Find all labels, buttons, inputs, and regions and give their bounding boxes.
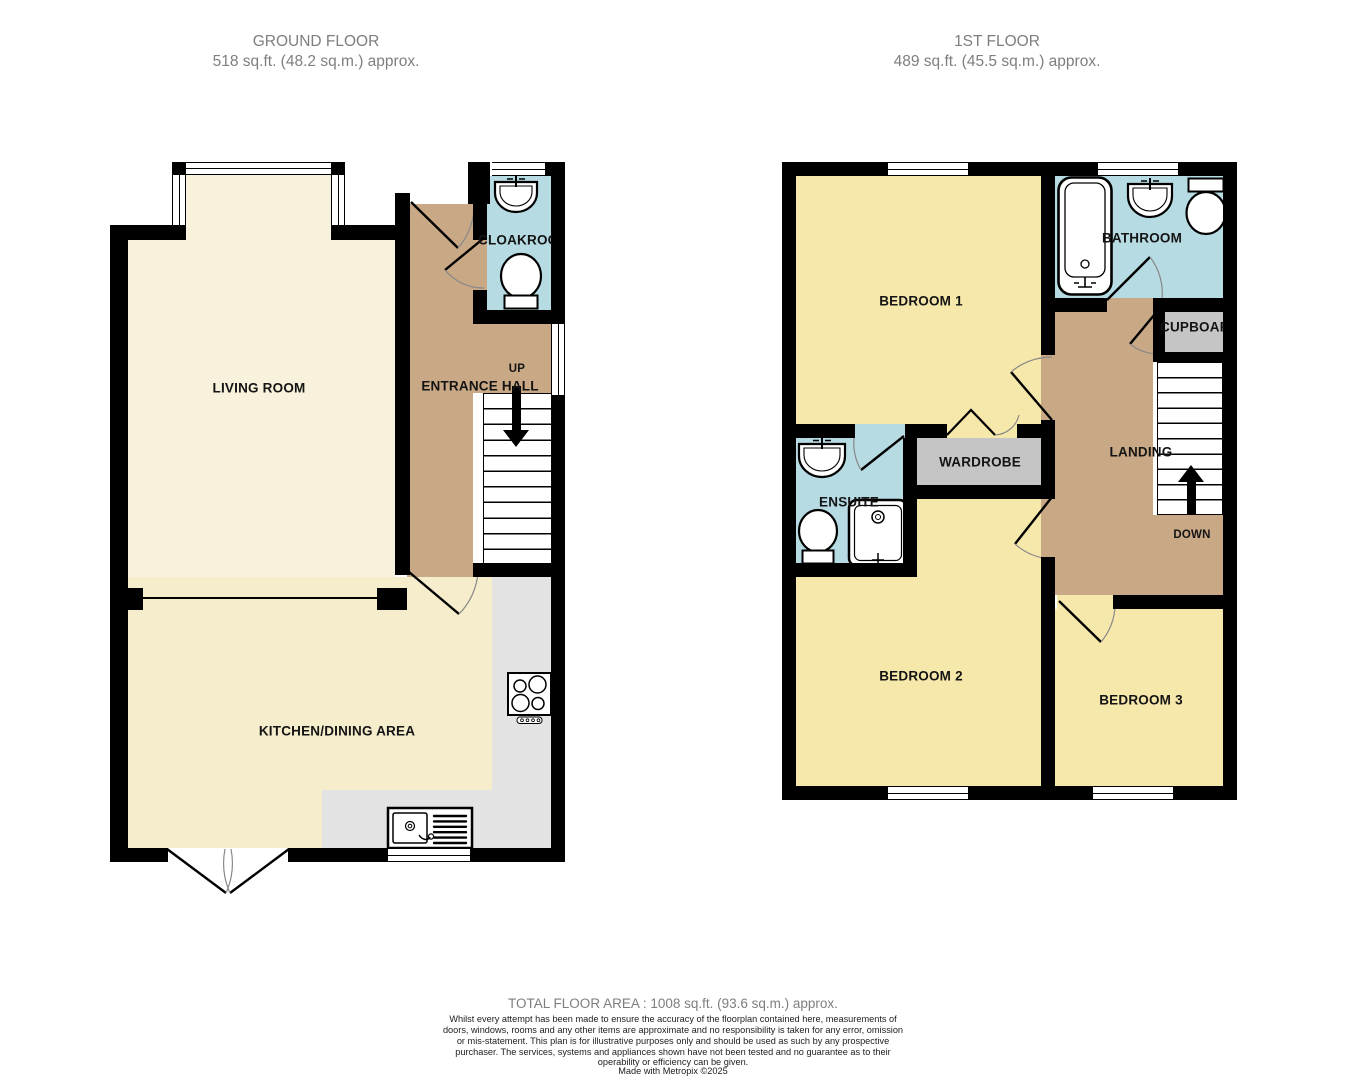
bedroom3-label: BEDROOM 3: [1099, 693, 1183, 708]
living-room-floor: [128, 240, 395, 597]
cloakroom-window: [492, 162, 545, 176]
wall: [782, 162, 796, 800]
wall: [551, 162, 565, 324]
wall: [1223, 162, 1237, 800]
ground-floor-title: GROUND FLOOR 518 sq.ft. (48.2 sq.m.) app…: [116, 32, 516, 72]
wall: [782, 563, 917, 577]
kitchen-sink-icon: [386, 806, 474, 850]
first-floor-title-text: 1ST FLOOR: [797, 32, 1197, 52]
landing-floor: [1153, 515, 1223, 595]
wall: [473, 563, 565, 577]
wardrobe-label: WARDROBE: [939, 455, 1021, 470]
bedroom3-window: [1093, 786, 1173, 800]
wall: [331, 162, 345, 175]
wall: [551, 395, 565, 848]
cloakroom-label: CLOAKROOM: [478, 233, 552, 248]
stove-icon: [506, 671, 553, 724]
down-label: DOWN: [1173, 529, 1210, 541]
wall: [1113, 595, 1223, 609]
first-floor-area-text: 489 sq.ft. (45.5 sq.m.) approx.: [797, 52, 1197, 72]
wall: [905, 424, 947, 438]
wall: [968, 162, 1098, 176]
entrance-hall-label: ENTRANCE HALL: [421, 379, 538, 394]
toilet-icon: [497, 251, 545, 311]
wall: [1153, 352, 1223, 362]
bay-window-floor: [186, 175, 331, 240]
wall: [377, 588, 407, 610]
sink-icon: [1121, 175, 1179, 235]
bathroom-window: [1098, 162, 1178, 176]
total-floor-area: TOTAL FLOOR AREA : 1008 sq.ft. (93.6 sq.…: [423, 996, 923, 1011]
ground-floor-title-text: GROUND FLOOR: [116, 32, 516, 52]
bedroom1-window: [888, 162, 968, 176]
wall: [782, 162, 888, 176]
wall: [110, 848, 168, 862]
ground-floor-area-text: 518 sq.ft. (48.2 sq.m.) approx.: [116, 52, 516, 72]
living-room-label: LIVING ROOM: [213, 381, 306, 396]
wall: [782, 424, 855, 438]
toilet-icon: [795, 507, 841, 567]
wall: [903, 438, 917, 563]
kitchen-dining-label: KITCHEN/DINING AREA: [259, 724, 415, 739]
wall: [288, 848, 388, 862]
bedroom2-window: [888, 786, 968, 800]
ensuite-door: [848, 428, 910, 478]
wall: [473, 310, 565, 324]
cupboard-label: CUPBOARD: [1160, 320, 1224, 335]
wall: [110, 588, 143, 610]
wall: [395, 193, 410, 575]
wall: [1041, 176, 1055, 355]
first-stairs-arrow-icon: [1187, 481, 1196, 515]
bedroom2-door: [1006, 490, 1056, 564]
first-stairs-arrowhead-icon: [1178, 465, 1204, 482]
bay-window: [331, 175, 345, 225]
wall: [1017, 424, 1041, 438]
first-floor-title: 1ST FLOOR 489 sq.ft. (45.5 sq.m.) approx…: [797, 32, 1197, 72]
ground-stairs-arrowhead-icon: [503, 430, 529, 447]
hall-window: [551, 324, 565, 395]
wall: [782, 786, 888, 800]
sink-icon: [489, 173, 543, 221]
wall: [473, 176, 487, 240]
wall: [172, 162, 186, 175]
floorplan-canvas: GROUND FLOOR 518 sq.ft. (48.2 sq.m.) app…: [0, 0, 1347, 1080]
ensuite-label: ENSUITE: [819, 495, 879, 510]
kitchen-window: [388, 848, 470, 862]
room-divider-line: [143, 597, 377, 599]
bedroom3-door: [1052, 594, 1120, 648]
wall: [1041, 557, 1055, 786]
wall: [968, 786, 1093, 800]
bay-window: [186, 162, 331, 175]
disclaimer-text: Whilst every attempt has been made to en…: [438, 1014, 908, 1068]
bedroom2-label: BEDROOM 2: [879, 669, 963, 684]
sink-icon: [793, 434, 853, 492]
wall: [903, 485, 1055, 499]
wall: [110, 225, 128, 848]
credit-text: Made with Metropix ©2025: [438, 1066, 908, 1076]
bathroom-label: BATHROOM: [1102, 231, 1182, 246]
wardrobe-bifold-doors: [944, 402, 1022, 438]
up-label: UP: [509, 363, 525, 375]
wall: [1055, 298, 1107, 312]
wall: [470, 848, 565, 862]
bay-window: [172, 175, 186, 225]
wall: [1162, 298, 1223, 312]
french-doors: [164, 846, 292, 904]
landing-label: LANDING: [1110, 445, 1173, 460]
bedroom1-label: BEDROOM 1: [879, 294, 963, 309]
